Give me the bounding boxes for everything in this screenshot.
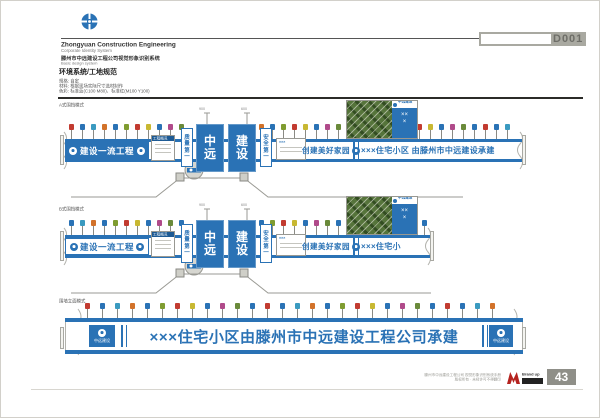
flag-icon <box>146 124 151 130</box>
slogan-left-text: 建设一流工程 <box>80 241 134 253</box>
logo-panel-c-right: 中远建设 <box>489 325 513 347</box>
flag-icon <box>80 124 85 130</box>
slogan-mid-text: 创建美好家园 <box>302 145 350 156</box>
header-rule <box>61 38 479 39</box>
slogan-panel-a-left: 建设一流工程 <box>65 142 149 159</box>
page-number-box: 43 <box>547 369 576 385</box>
gate-pillar-a-left: 中远 <box>196 124 224 172</box>
company-medallion-icon <box>497 329 505 337</box>
flag-icon <box>124 220 129 226</box>
flag-icon <box>415 303 420 309</box>
page-number: 43 <box>555 370 568 384</box>
slogan-left-text: 建设一流工程 <box>80 145 134 157</box>
flag-icon <box>450 124 455 130</box>
doc-code: D001 <box>553 33 583 45</box>
gate-post-b-right <box>240 269 248 277</box>
gate-post-b-left <box>176 269 184 277</box>
billboard-a: 中远建设 ××× <box>346 100 418 139</box>
divider-bars <box>121 325 127 347</box>
flag-icon <box>292 124 297 130</box>
flag-icon <box>102 220 107 226</box>
billboard-photo <box>347 197 392 234</box>
flag-icon <box>303 220 308 226</box>
flag-icon <box>303 124 308 130</box>
company-name-en-sub: Corporate Identity System <box>61 48 112 53</box>
section-title: 环境系统/工地规范 <box>59 67 117 77</box>
flag-icon <box>292 220 297 226</box>
gate-pillar-b-right: 建设 <box>228 220 256 268</box>
slogan-panel-a-mid: 创建美好家园 <box>302 142 346 159</box>
flag-icon <box>325 220 330 226</box>
info-board-title: 工程概况 <box>153 232 167 237</box>
info-board-b: 工程概况 <box>151 231 175 257</box>
system-title-en: Basic design system <box>61 61 97 66</box>
banner-a-text: ×××住宅小区 由滕州市中远建设承建 <box>361 145 495 156</box>
dimension-leaders-a <box>204 113 250 124</box>
flag-icon <box>130 303 135 309</box>
fence-bottom-rail-c <box>65 350 523 354</box>
dim-label-a2: 600 <box>241 107 247 111</box>
flag-icon <box>102 124 107 130</box>
flag-icon <box>310 303 315 309</box>
flag-icon <box>281 220 286 226</box>
billboard-side-text: ××× <box>401 208 408 222</box>
flag-icon <box>235 303 240 309</box>
fence-endpost <box>430 231 434 261</box>
brandup-name-cn-box: 兆维品牌 <box>522 378 543 384</box>
flag-icon <box>100 303 105 309</box>
flag-icon <box>175 303 180 309</box>
flag-icon <box>157 220 162 226</box>
flag-icon <box>135 124 140 130</box>
flag-icon <box>113 220 118 226</box>
flag-icon <box>428 124 433 130</box>
fence-endpost <box>60 231 64 261</box>
slogan-panel-b-mid: 创建美好家园 <box>302 238 346 255</box>
dim-label-b1: 900 <box>199 203 205 207</box>
banner-c-wrap: ×××住宅小区由滕州市中远建设工程公司承建 <box>128 322 480 350</box>
mini-logo-icon <box>393 103 397 107</box>
banner-b-text: ×××住宅小 <box>361 241 401 252</box>
fence-endpost <box>60 327 64 349</box>
slogan-mid-text: 创建美好家园 <box>302 241 350 252</box>
fence-endpost <box>60 135 64 165</box>
flag-icon <box>445 303 450 309</box>
gate-post-a-left <box>176 173 184 181</box>
flag-icon <box>69 124 74 130</box>
flag-icon <box>124 124 129 130</box>
flag-icon <box>460 303 465 309</box>
info-board-a: 工程概况 <box>151 135 175 161</box>
flag-icon <box>146 220 151 226</box>
road-plan-b <box>71 274 431 293</box>
strip-quality-first-b: 质量第一 <box>181 224 193 263</box>
flag-icon <box>295 303 300 309</box>
flag-icon <box>472 124 477 130</box>
gate-pillar-b-left: 中远 <box>196 220 224 268</box>
flag-icon <box>160 303 165 309</box>
flag-icon <box>340 303 345 309</box>
flag-icon <box>80 220 85 226</box>
flag-icon <box>490 303 495 309</box>
company-medallion-icon <box>69 147 77 155</box>
billboard-brand-panel: 中远建设 ××× <box>392 197 417 234</box>
company-medallion-icon <box>70 243 78 251</box>
flag-icon <box>400 303 405 309</box>
brandup-logo-icon <box>507 372 520 384</box>
fence-endpost <box>522 135 526 165</box>
flag-icon <box>113 124 118 130</box>
flag-icon <box>355 303 360 309</box>
flag-icon <box>281 124 286 130</box>
billboard-photo <box>347 101 392 138</box>
flag-icon <box>265 303 270 309</box>
flag-icon <box>475 303 480 309</box>
flag-icon <box>370 303 375 309</box>
main-rule <box>58 97 583 99</box>
flag-icon <box>250 303 255 309</box>
flag-icon <box>168 220 173 226</box>
flag-icon <box>483 124 488 130</box>
diagram-c-label: 围墙立面模式 <box>59 298 85 304</box>
doc-code-blank-box <box>481 34 551 44</box>
flag-icon <box>505 124 510 130</box>
slogan-panel-b-left: 建设一流工程 <box>65 238 149 255</box>
flag-icon <box>280 303 285 309</box>
flag-icon <box>190 303 195 309</box>
company-medallion-icon <box>98 329 106 337</box>
dim-label-a1: 900 <box>199 107 205 111</box>
flag-icon <box>494 124 499 130</box>
divider-bars <box>353 238 359 255</box>
flag-icon <box>439 124 444 130</box>
strip-safety-first-b: 安全第一 <box>260 224 272 263</box>
diagram-a-label: A式围挡模式 <box>59 102 84 108</box>
doc-code-bar: D001 <box>479 32 586 46</box>
flag-icon <box>314 220 319 226</box>
dimension-leaders-b <box>204 209 250 220</box>
flag-icon <box>325 124 330 130</box>
dim-label-b2: 600 <box>241 203 247 207</box>
footer-notes: 滕州市中远建设工程公司 视觉形象识别系统手册 版权所有 · 未经许可不得翻印 <box>393 373 501 382</box>
info-board-title: 工程概况 <box>153 136 167 141</box>
flag-icon <box>461 124 466 130</box>
flag-icon <box>220 303 225 309</box>
flag-icon <box>157 124 162 130</box>
flag-icon <box>135 220 140 226</box>
flag-icon <box>336 124 341 130</box>
billboard-b: 中远建设 ××× <box>346 196 418 235</box>
flag-icon <box>325 303 330 309</box>
flag-icon <box>115 303 120 309</box>
flag-icon <box>69 220 74 226</box>
flag-icon <box>145 303 150 309</box>
flag-icon <box>314 124 319 130</box>
flag-icon <box>91 124 96 130</box>
diagram-b-label: B式围挡模式 <box>59 206 84 212</box>
footer-note-2: 版权所有 · 未经许可不得翻印 <box>393 378 501 383</box>
billboard-brand-panel: 中远建设 ××× <box>392 101 417 138</box>
divider-bars <box>353 142 359 159</box>
logo-panel-c-left: 中远建设 <box>89 325 115 347</box>
company-medallion-icon <box>137 147 145 155</box>
fence-endpost <box>522 327 526 349</box>
flag-icon <box>422 220 427 226</box>
billboard-side-text: ××× <box>401 112 408 126</box>
brandup-name: Brand up <box>522 372 540 377</box>
flag-icon <box>85 303 90 309</box>
strip-safety-first-a: 安全第一 <box>260 128 272 167</box>
flag-icon <box>168 124 173 130</box>
gate-pillar-a-right: 建设 <box>228 124 256 172</box>
manual-page: Zhongyuan Construction Engineering Corpo… <box>0 0 600 418</box>
divider-bars <box>482 325 488 347</box>
flag-icon <box>385 303 390 309</box>
footer-rule <box>31 389 583 390</box>
company-logo-icon <box>81 13 98 30</box>
road-plan-a <box>71 178 463 197</box>
company-medallion-icon <box>136 243 144 251</box>
flag-icon <box>91 220 96 226</box>
spec-line-3: 色彩: 标准蓝(C100 M80)、标准红(M100 Y100) <box>59 88 150 94</box>
flag-icon <box>430 303 435 309</box>
flag-icon <box>336 220 341 226</box>
gate-post-a-right <box>240 173 248 181</box>
mini-logo-icon <box>393 199 397 203</box>
banner-c-text: ×××住宅小区由滕州市中远建设工程公司承建 <box>150 326 459 347</box>
strip-quality-first-a: 质量第一 <box>181 128 193 167</box>
flag-icon <box>205 303 210 309</box>
